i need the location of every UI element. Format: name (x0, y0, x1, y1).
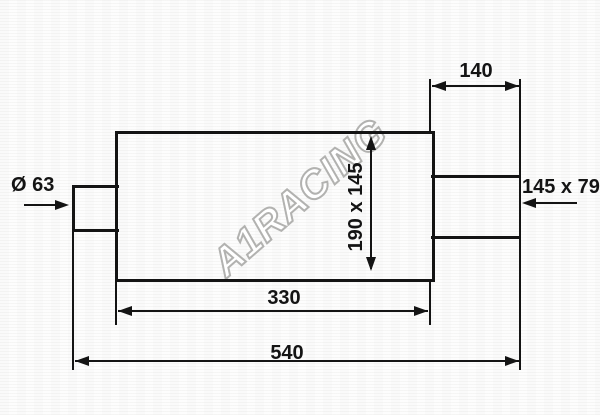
arrowhead-right-icon (55, 200, 69, 210)
extension-line-total-right (519, 79, 521, 370)
dim-line-body-section (370, 139, 372, 269)
label-inlet-diameter: Ø 63 (11, 175, 54, 195)
extension-line-body-right-down (429, 279, 431, 325)
arrowhead-up-icon (366, 136, 376, 150)
extension-line-total-left (72, 226, 74, 370)
extension-line-body-left (115, 279, 117, 325)
arrowhead-right-icon (414, 306, 428, 316)
label-total-length: 540 (270, 343, 303, 363)
arrowhead-down-icon (366, 257, 376, 271)
inlet-pipe-outline (72, 185, 119, 232)
leader-line-outlet (535, 202, 577, 204)
technical-drawing-canvas: A1RACING 140 Ø 63 145 x 79 190 x 145 330… (0, 0, 600, 415)
label-outlet-size: 145 x 79 (522, 177, 600, 197)
arrowhead-left-icon (432, 81, 446, 91)
extension-line-body-right-up (429, 79, 431, 132)
arrowhead-left-icon (118, 306, 132, 316)
label-body-section: 190 x 145 (346, 163, 366, 252)
muffler-body-outline (115, 131, 435, 282)
leader-line-inlet (24, 204, 57, 206)
arrowhead-left-icon (75, 356, 89, 366)
arrowhead-right-icon (505, 356, 519, 366)
label-body-length: 330 (267, 288, 300, 308)
arrowhead-left-icon (522, 198, 536, 208)
label-tail-length: 140 (459, 61, 492, 81)
outlet-pipe-outline (431, 175, 520, 239)
arrowhead-right-icon (505, 81, 519, 91)
dim-line-body-length (118, 310, 428, 312)
